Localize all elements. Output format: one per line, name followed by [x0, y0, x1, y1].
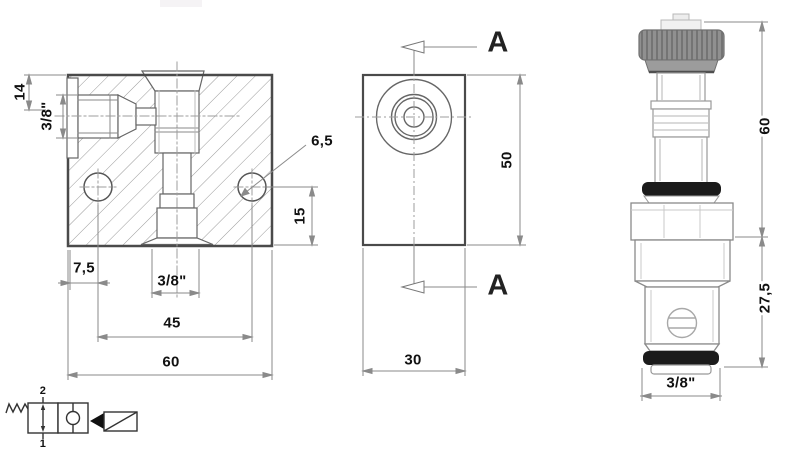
dim-label-27-5: 27,5	[757, 281, 774, 315]
section-arrow-top-icon	[402, 41, 477, 75]
technical-drawing-page: 14 3/8" 7,5 3/8" 45 60 6,5 15 50 30 A A …	[0, 0, 800, 450]
dim-label-14: 14	[12, 83, 29, 100]
cartridge-body	[631, 203, 733, 351]
solenoid-icon	[90, 412, 137, 431]
o-ring-upper	[642, 182, 721, 196]
dim-label-50: 50	[499, 151, 516, 168]
nut-collar	[645, 60, 718, 72]
schematic-port-1-label: 1	[40, 438, 46, 450]
dim-label-60-width: 60	[162, 354, 179, 371]
dim-label-7-5: 7,5	[73, 260, 95, 277]
dim-label-thread: 3/8"	[666, 375, 695, 392]
o-ring-lower	[643, 351, 719, 365]
cartridge-view	[631, 14, 733, 374]
section-arrow-bottom-icon	[402, 245, 477, 293]
dim-label-side-port: 3/8"	[39, 101, 56, 130]
dim-label-45: 45	[163, 315, 180, 332]
dim-label-60-cartridge: 60	[757, 115, 774, 136]
schematic-port-2-label: 2	[40, 385, 46, 397]
dim-label-30: 30	[404, 352, 421, 369]
section-label-bottom: A	[487, 270, 508, 303]
watermark-smudge	[160, 0, 202, 7]
dim-label-bottom-port: 3/8"	[157, 273, 186, 290]
section-label-top: A	[487, 27, 508, 60]
hydraulic-symbol	[6, 397, 137, 439]
dim-label-6-5: 6,5	[311, 133, 333, 150]
cartridge-nose	[651, 365, 711, 374]
dim-label-15: 15	[292, 207, 309, 224]
spring-icon	[6, 404, 28, 413]
